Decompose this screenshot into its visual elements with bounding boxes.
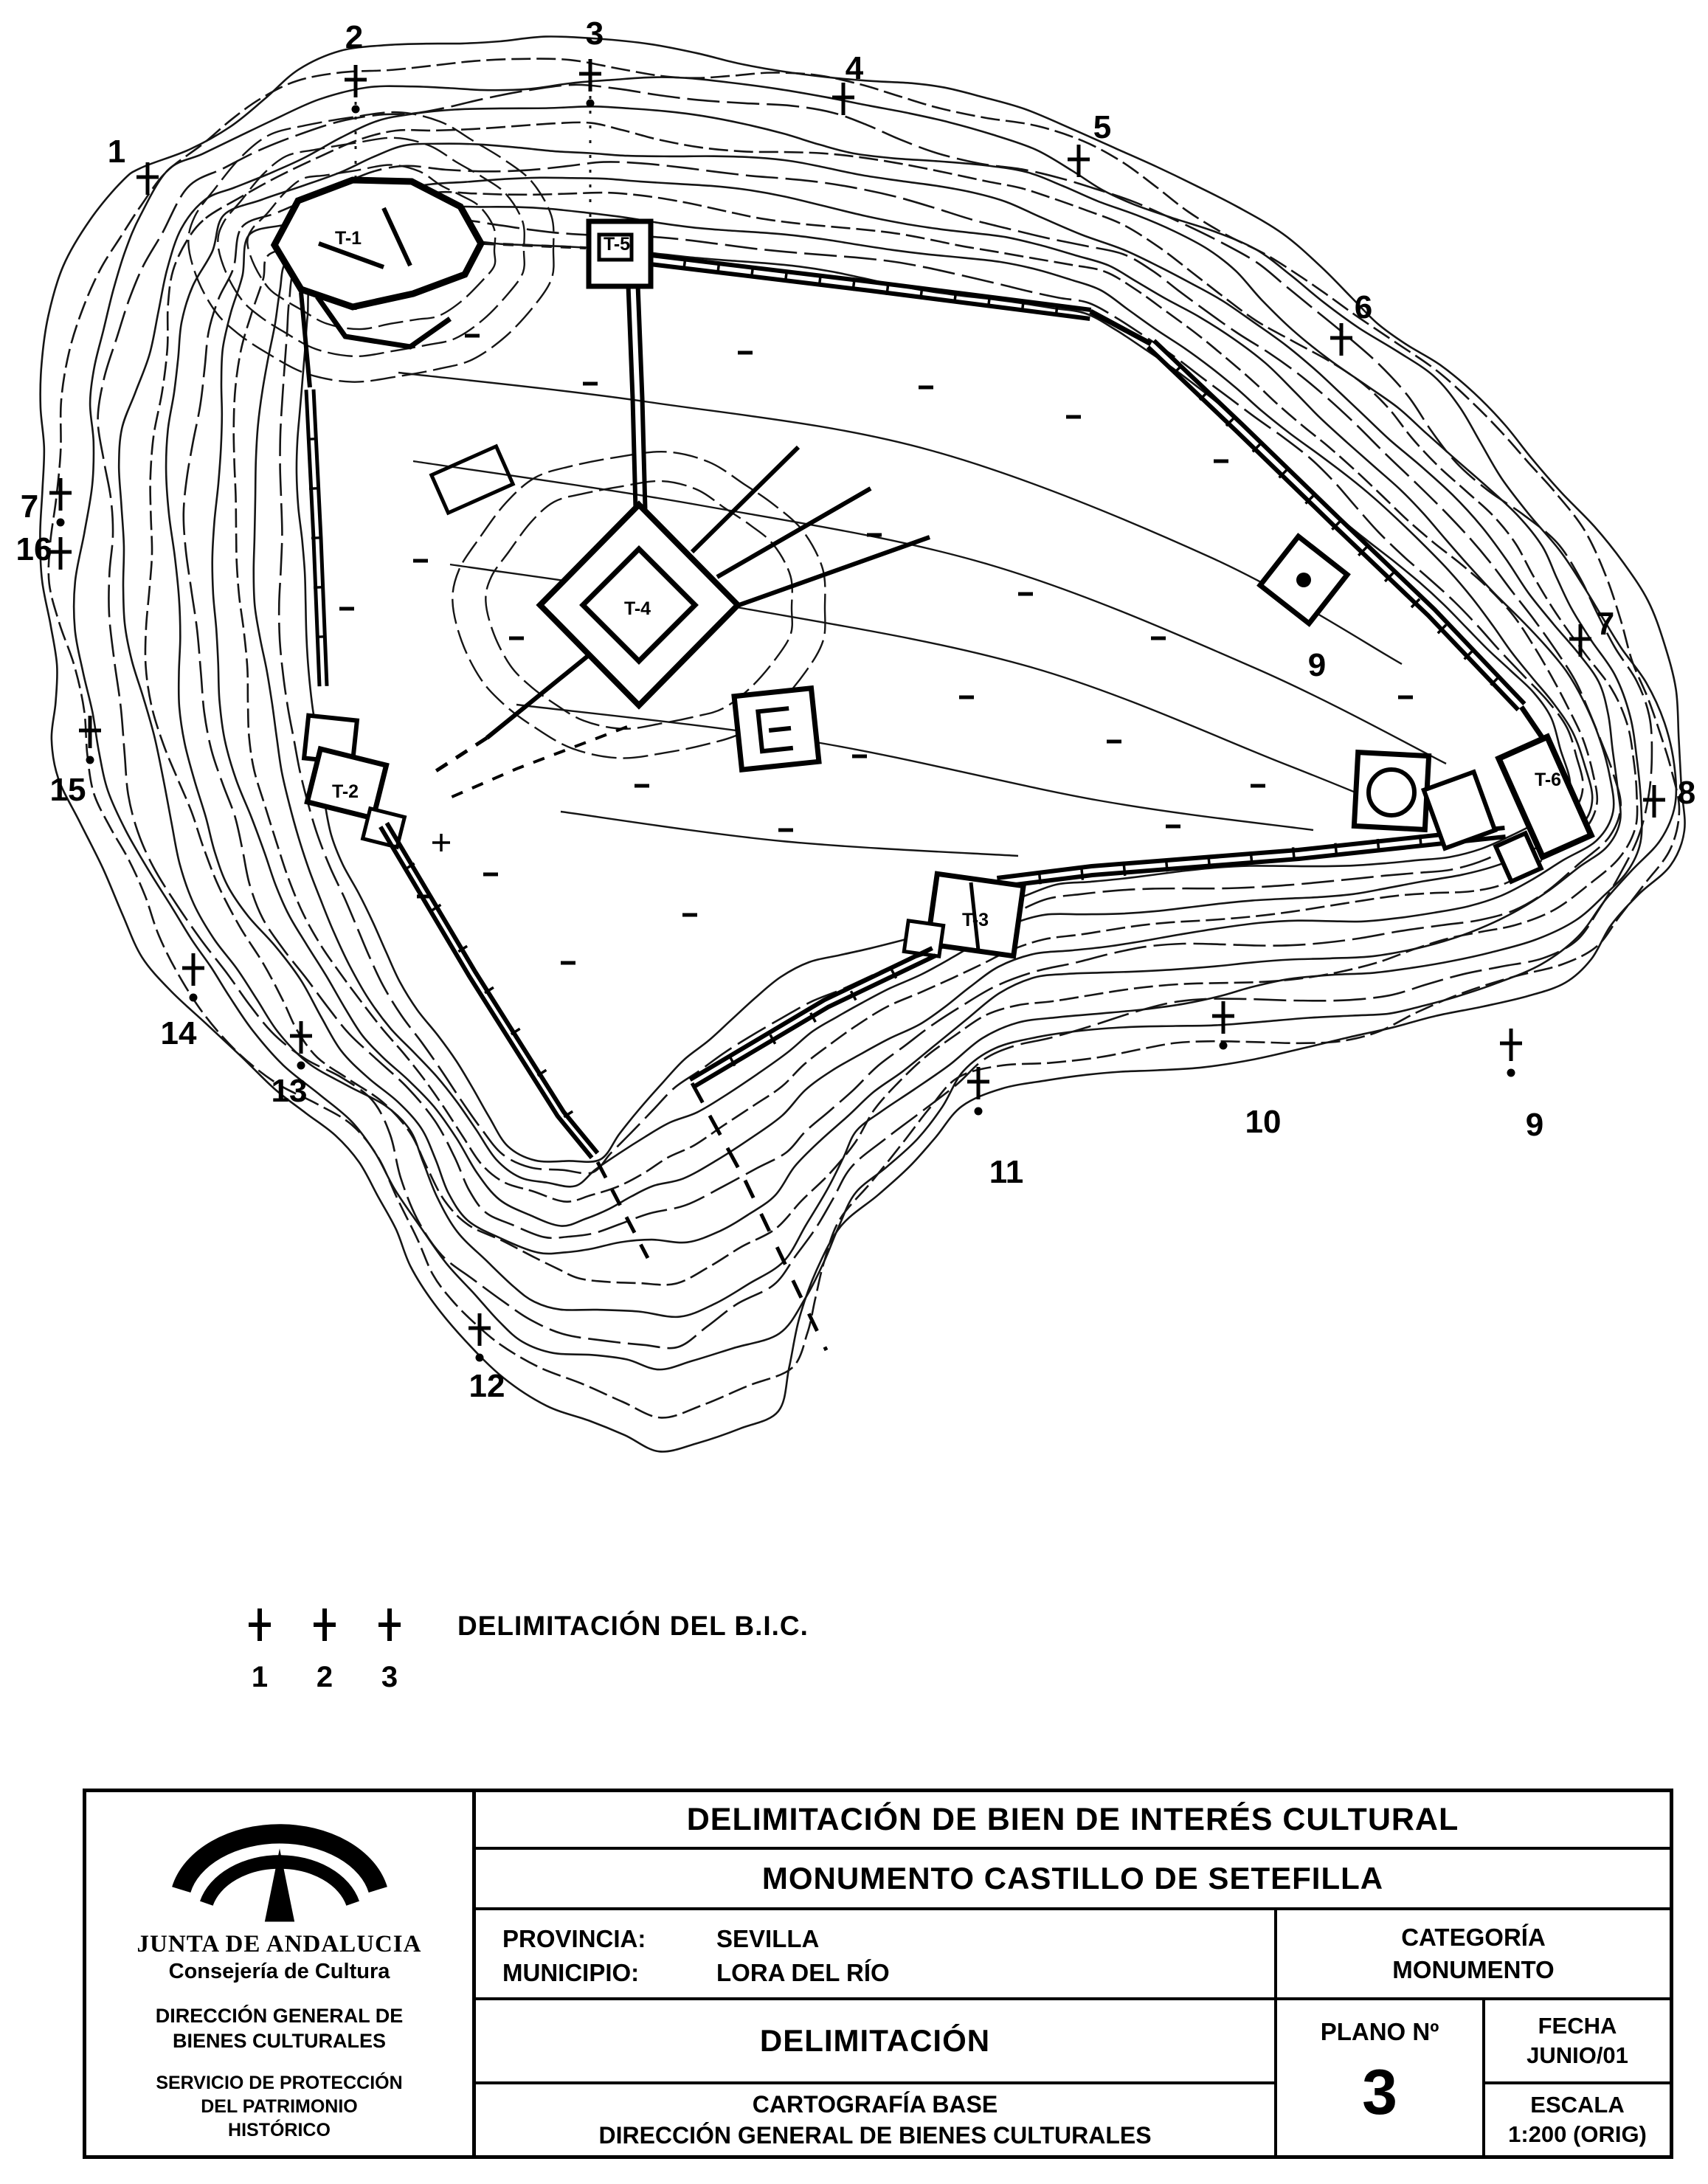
boundary-point-label: 10 — [1245, 1104, 1282, 1140]
agency-department: DIRECCIÓN GENERAL DE BIENES CULTURALES — [156, 2003, 404, 2053]
agency-dept-line2: BIENES CULTURALES — [156, 2028, 404, 2053]
escala-label: ESCALA — [1530, 2090, 1624, 2120]
structure-label: T-1 — [335, 228, 362, 249]
categoria-cell: CATEGORÍA MONUMENTO — [1274, 1910, 1670, 1997]
municipio-label: MUNICIPIO: — [502, 1956, 716, 1990]
fecha-escala-cells: FECHA JUNIO/01 ESCALA 1:200 (ORIG) — [1482, 2000, 1670, 2155]
structure-label: T-3 — [962, 910, 989, 930]
agency-panel: JUNTA DE ANDALUCIA Consejería de Cultura… — [86, 1792, 476, 2155]
boundary-point-label: 8 — [1678, 775, 1695, 811]
agency-service: SERVICIO DE PROTECCIÓN DEL PATRIMONIO HI… — [156, 2071, 402, 2142]
boundary-point-label: 7 — [1597, 606, 1614, 642]
boundary-point-label: 16 — [16, 531, 52, 567]
provincia-label: PROVINCIA: — [502, 1922, 716, 1956]
agency-name: JUNTA DE ANDALUCIA — [137, 1931, 422, 1958]
bottom-left-cells: DELIMITACIÓN CARTOGRAFÍA BASE DIRECCIÓN … — [476, 2000, 1274, 2155]
boundary-point-16: 16 — [16, 531, 72, 570]
boundary-point-label: 9 — [1526, 1107, 1543, 1143]
fecha-value: JUNIO/01 — [1527, 2041, 1628, 2070]
agency-serv-line1: SERVICIO DE PROTECCIÓN — [156, 2071, 402, 2095]
cartografia-line2: DIRECCIÓN GENERAL DE BIENES CULTURALES — [598, 2120, 1151, 2151]
boundary-point-label: 3 — [586, 15, 604, 52]
boundary-point-label: 6 — [1355, 289, 1372, 325]
legend-cross-icon — [378, 1608, 401, 1641]
monument-name: MONUMENTO CASTILLO DE SETEFILLA — [476, 1850, 1670, 1910]
boundary-point-label: 14 — [161, 1015, 197, 1051]
legend-point-number: 1 — [252, 1661, 268, 1693]
boundary-point-4: 4 — [832, 50, 864, 115]
boundary-markers: 123456789101112131415167 — [16, 15, 1696, 1404]
title-block: JUNTA DE ANDALUCIA Consejería de Cultura… — [83, 1789, 1673, 2159]
location-row: PROVINCIA: SEVILLA MUNICIPIO: LORA DEL R… — [476, 1910, 1670, 2000]
plano-number: 3 — [1362, 2056, 1397, 2129]
castle-site-map: T-1T-5T-4T-2T-3T-69123456789101112131415… — [0, 0, 1708, 1719]
legend-cross-icon — [249, 1608, 271, 1641]
boundary-point-2: 2 — [345, 19, 367, 114]
boundary-point-8: 8 — [1643, 775, 1695, 818]
agency-subtitle: Consejería de Cultura — [169, 1960, 390, 1984]
escala-value: 1:200 (ORIG) — [1508, 2120, 1647, 2149]
boundary-point-label: 11 — [989, 1154, 1024, 1190]
boundary-point-label: 5 — [1093, 109, 1111, 145]
cartografia-cell: CARTOGRAFÍA BASE DIRECCIÓN GENERAL DE BI… — [476, 2084, 1274, 2155]
junta-de-andalucia-logo-icon — [165, 1803, 394, 1926]
boundary-point-label: 1 — [108, 134, 125, 170]
plano-cell: PLANO Nº 3 — [1274, 2000, 1482, 2155]
plan-sheet: T-1T-5T-4T-2T-3T-69123456789101112131415… — [0, 0, 1708, 2184]
legend-point-number: 3 — [381, 1661, 398, 1693]
boundary-point-10: 10 — [1212, 1001, 1281, 1140]
legend-cross-icon — [314, 1608, 336, 1641]
boundary-point-label: 7 — [21, 488, 38, 525]
categoria-value: MONUMENTO — [1392, 1954, 1554, 1986]
structure-label: T-2 — [332, 781, 359, 802]
sheet-title: DELIMITACIÓN DE BIEN DE INTERÉS CULTURAL — [476, 1792, 1670, 1850]
legend-label: DELIMITACIÓN DEL B.I.C. — [457, 1610, 809, 1641]
boundary-point-label: 15 — [50, 772, 86, 808]
bottom-rows: DELIMITACIÓN CARTOGRAFÍA BASE DIRECCIÓN … — [476, 2000, 1670, 2155]
escala-cell: ESCALA 1:200 (ORIG) — [1485, 2084, 1670, 2155]
agency-serv-line2: DEL PATRIMONIO — [156, 2095, 402, 2118]
small-building — [734, 688, 819, 770]
legend: 123DELIMITACIÓN DEL B.I.C. — [249, 1608, 809, 1693]
plano-label: PLANO Nº — [1321, 2018, 1439, 2046]
delimitacion-cell: DELIMITACIÓN — [476, 2000, 1274, 2084]
boundary-point-9: 9 — [1500, 1029, 1543, 1143]
structure-label: T-5 — [604, 234, 630, 255]
interior-label: 9 — [1308, 647, 1326, 683]
agency-serv-line3: HISTÓRICO — [156, 2118, 402, 2142]
municipio-value: LORA DEL RÍO — [716, 1956, 1274, 1990]
boundary-point-label: 4 — [846, 50, 864, 86]
boundary-point-13: 13 — [272, 1021, 312, 1109]
location-fields: PROVINCIA: SEVILLA MUNICIPIO: LORA DEL R… — [476, 1910, 1274, 1997]
fecha-cell: FECHA JUNIO/01 — [1485, 2000, 1670, 2084]
title-block-fields: DELIMITACIÓN DE BIEN DE INTERÉS CULTURAL… — [476, 1792, 1670, 2155]
structure-label: T-6 — [1535, 770, 1561, 790]
legend-point-number: 2 — [317, 1661, 333, 1693]
fecha-label: FECHA — [1538, 2011, 1617, 2041]
boundary-point-3: 3 — [579, 15, 604, 108]
boundary-point-7: 7 — [21, 478, 72, 527]
categoria-label: CATEGORÍA — [1401, 1921, 1546, 1954]
boundary-point-label: 13 — [272, 1073, 308, 1109]
cartografia-line1: CARTOGRAFÍA BASE — [753, 2089, 998, 2120]
provincia-value: SEVILLA — [716, 1922, 1274, 1956]
boundary-point-label: 12 — [469, 1368, 505, 1404]
agency-dept-line1: DIRECCIÓN GENERAL DE — [156, 2003, 404, 2028]
structure-label: T-4 — [624, 598, 651, 619]
boundary-point-12: 12 — [469, 1313, 505, 1404]
boundary-point-label: 2 — [345, 19, 363, 55]
